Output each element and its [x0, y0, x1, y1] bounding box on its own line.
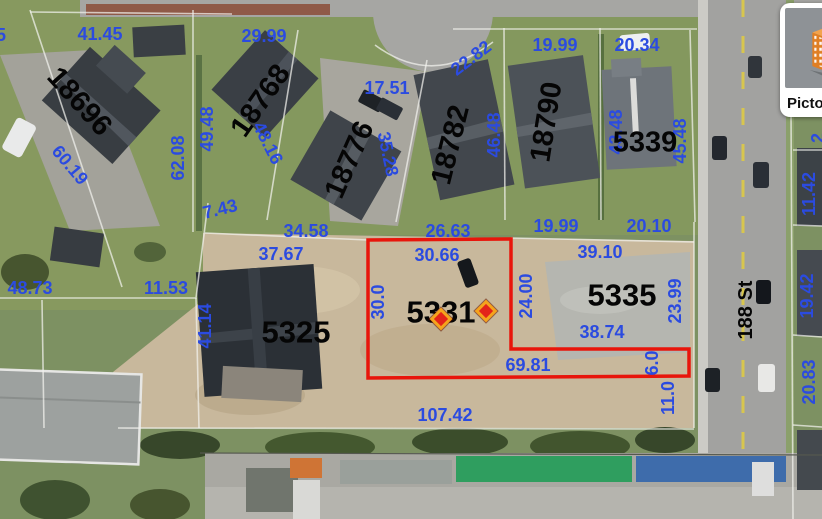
- pictometry-button[interactable]: Pictometry: [780, 3, 822, 117]
- pictometry-label: Pictometry: [787, 95, 822, 112]
- pictometry-icon-box: [785, 8, 822, 88]
- parcel-boundary-lines: [0, 10, 822, 519]
- selected-parcel-outline[interactable]: [368, 239, 689, 378]
- map-viewport[interactable]: 41.4529.9919.9920.3422.8217.5162.0849.48…: [0, 0, 822, 519]
- parcel-overlay: [0, 0, 822, 519]
- building-icon: [800, 17, 822, 79]
